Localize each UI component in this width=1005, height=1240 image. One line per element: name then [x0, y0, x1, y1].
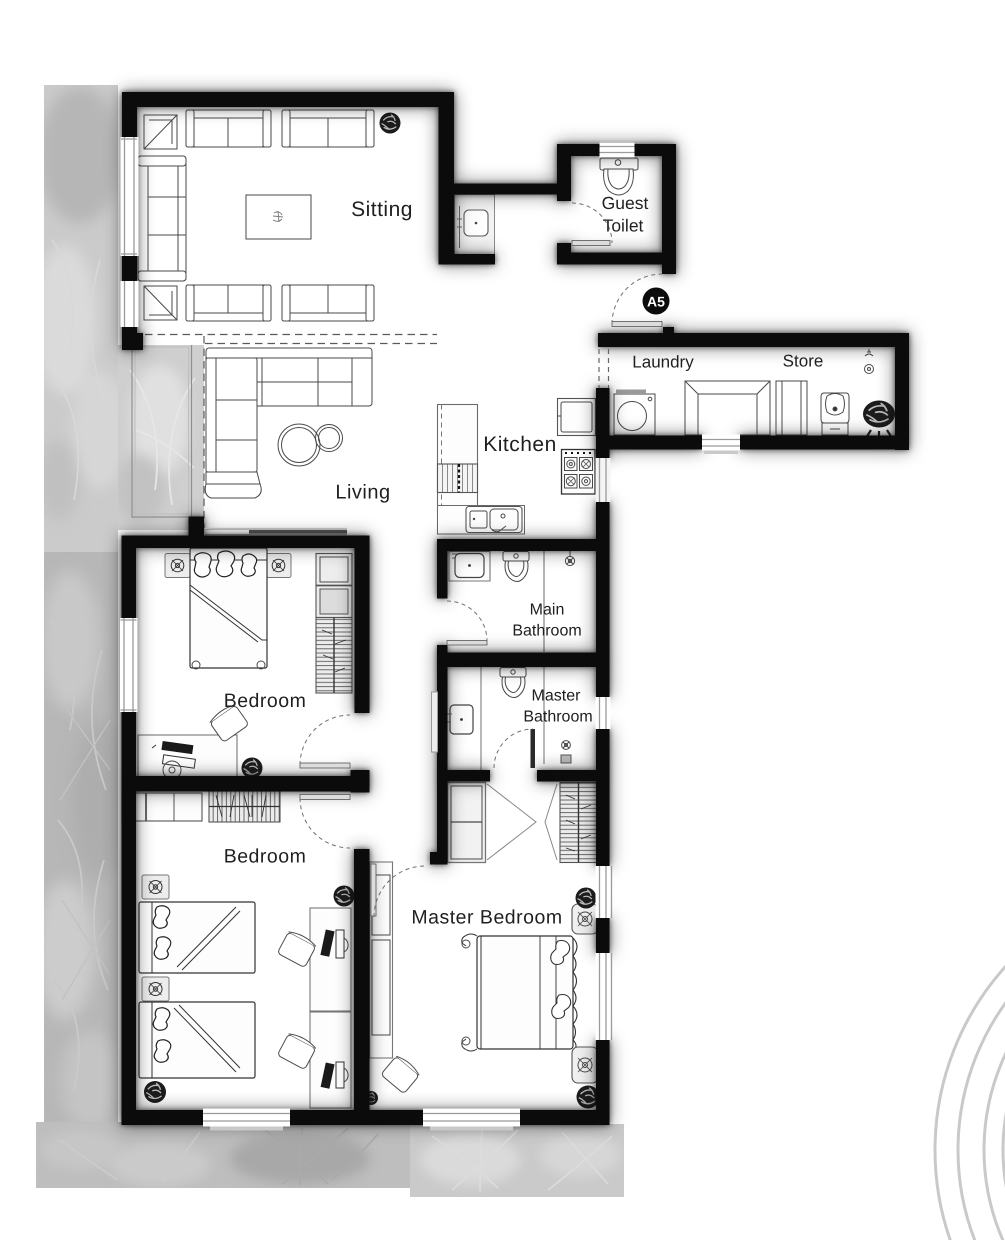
svg-text:Master Bedroom: Master Bedroom	[411, 907, 562, 929]
svg-text:Bedroom: Bedroom	[224, 690, 307, 712]
svg-text:Store: Store	[783, 352, 824, 371]
svg-text:Guest: Guest	[602, 193, 649, 213]
svg-text:Laundry: Laundry	[632, 353, 694, 372]
svg-text:Main: Main	[530, 602, 565, 619]
svg-text:A5: A5	[647, 294, 665, 310]
svg-text:Bathroom: Bathroom	[512, 623, 581, 640]
svg-text:Bedroom: Bedroom	[224, 846, 307, 868]
svg-text:Toilet: Toilet	[603, 216, 644, 236]
svg-text:Sitting: Sitting	[351, 198, 413, 221]
svg-text:Master: Master	[532, 688, 582, 705]
svg-text:Kitchen: Kitchen	[483, 433, 557, 456]
svg-text:Bathroom: Bathroom	[523, 709, 592, 726]
svg-text:Living: Living	[335, 482, 390, 504]
